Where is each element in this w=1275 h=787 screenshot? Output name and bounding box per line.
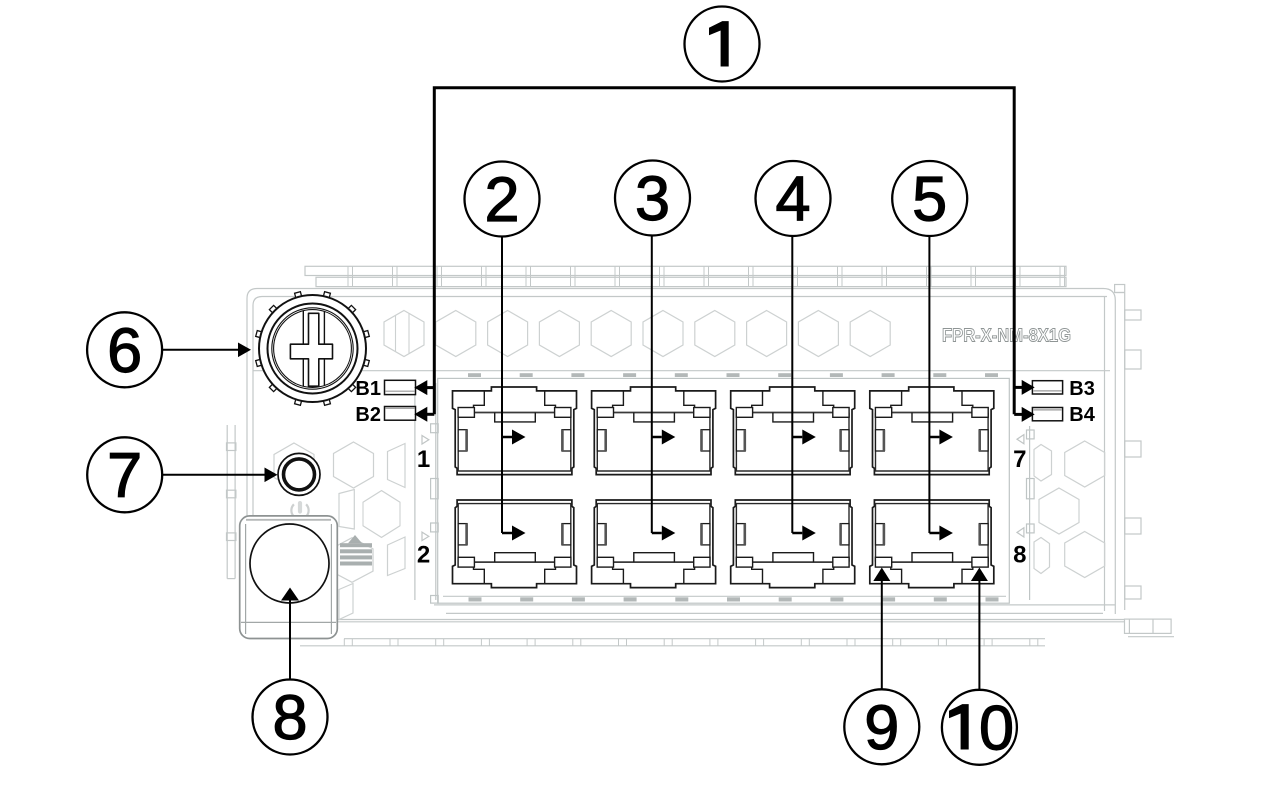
svg-text:8: 8 bbox=[272, 683, 307, 753]
svg-text:7: 7 bbox=[107, 441, 142, 511]
svg-text:5: 5 bbox=[912, 165, 947, 235]
svg-text:3: 3 bbox=[635, 164, 670, 234]
svg-text:8: 8 bbox=[1013, 542, 1026, 569]
svg-text:B3: B3 bbox=[1069, 378, 1095, 400]
svg-text:0: 0 bbox=[979, 694, 1014, 764]
svg-text:6: 6 bbox=[107, 316, 142, 386]
svg-text:FPR-X-NM-8X1G: FPR-X-NM-8X1G bbox=[942, 325, 1071, 346]
svg-text:9: 9 bbox=[864, 693, 899, 763]
svg-text:7: 7 bbox=[1013, 446, 1026, 473]
svg-text:B4: B4 bbox=[1069, 404, 1095, 426]
svg-text:4: 4 bbox=[775, 165, 810, 235]
svg-text:1: 1 bbox=[417, 446, 430, 473]
svg-text:B2: B2 bbox=[355, 404, 381, 426]
svg-text:2: 2 bbox=[484, 165, 519, 235]
svg-text:2: 2 bbox=[417, 542, 430, 569]
svg-text:B1: B1 bbox=[355, 378, 381, 400]
